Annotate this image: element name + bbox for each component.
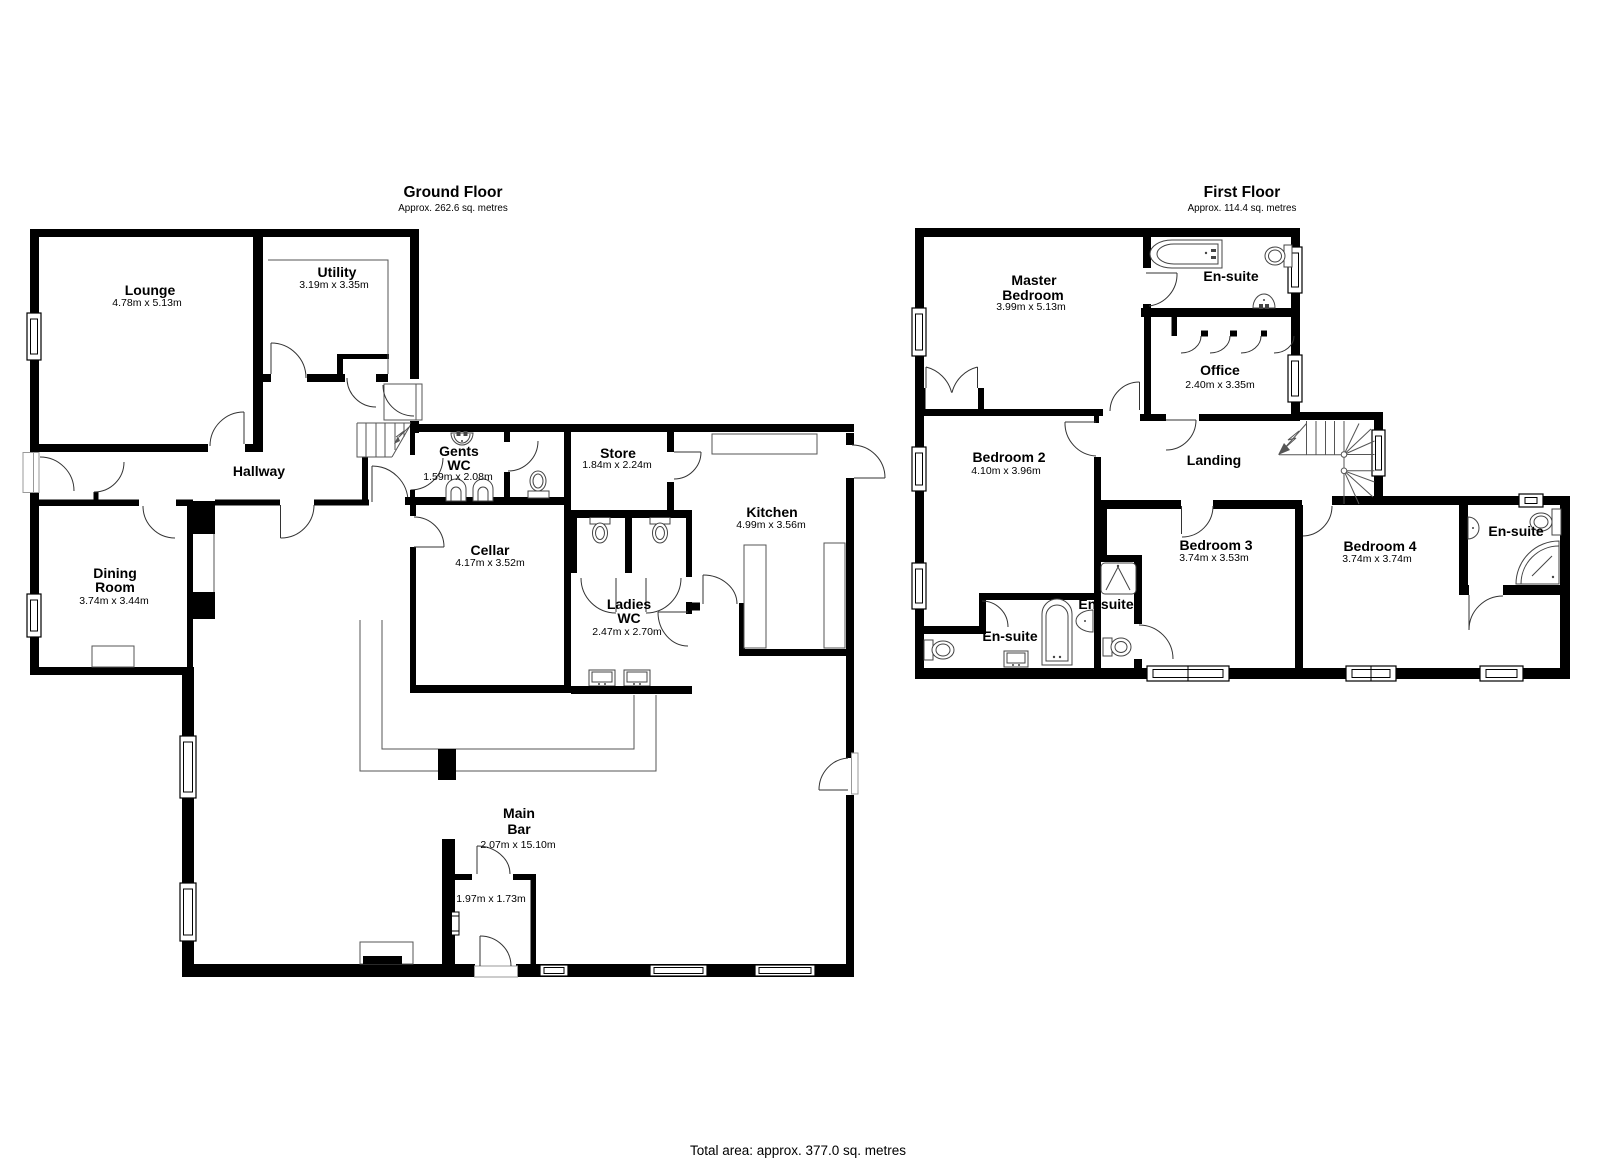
svg-text:Bar: Bar: [507, 821, 531, 837]
svg-text:Master: Master: [1011, 272, 1057, 288]
svg-text:3.74m x 3.74m: 3.74m x 3.74m: [1342, 553, 1412, 565]
svg-text:Kitchen: Kitchen: [746, 504, 797, 520]
svg-text:2.07m x 15.10m: 2.07m x 15.10m: [480, 839, 556, 851]
svg-text:Total area: approx. 377.0 sq.: Total area: approx. 377.0 sq. metres: [690, 1143, 906, 1158]
svg-text:1.84m x 2.24m: 1.84m x 2.24m: [582, 459, 652, 471]
svg-text:3.74m x 3.53m: 3.74m x 3.53m: [1179, 552, 1249, 564]
svg-text:Approx. 262.6 sq. metres: Approx. 262.6 sq. metres: [398, 203, 508, 214]
svg-text:3.74m x 3.44m: 3.74m x 3.44m: [79, 595, 149, 607]
svg-text:4.17m x 3.52m: 4.17m x 3.52m: [455, 557, 525, 569]
svg-text:Ground Floor: Ground Floor: [403, 184, 502, 201]
svg-text:Room: Room: [95, 579, 135, 595]
svg-text:Landing: Landing: [1187, 452, 1241, 468]
svg-text:Main: Main: [503, 805, 535, 821]
svg-text:3.99m x 5.13m: 3.99m x 5.13m: [996, 301, 1066, 313]
svg-text:Hallway: Hallway: [233, 463, 285, 479]
svg-text:WC: WC: [617, 610, 640, 626]
svg-text:1.59m x 2.08m: 1.59m x 2.08m: [423, 471, 493, 483]
svg-text:Approx. 114.4 sq. metres: Approx. 114.4 sq. metres: [1188, 203, 1297, 214]
svg-text:4.78m x 5.13m: 4.78m x 5.13m: [112, 297, 182, 309]
svg-text:First Floor: First Floor: [1204, 184, 1281, 201]
svg-text:Cellar: Cellar: [471, 542, 510, 558]
svg-text:4.10m x 3.96m: 4.10m x 3.96m: [971, 465, 1041, 477]
svg-text:2.47m x 2.70m: 2.47m x 2.70m: [592, 626, 662, 638]
svg-text:2.40m x 3.35m: 2.40m x 3.35m: [1185, 379, 1255, 391]
svg-text:Bedroom 4: Bedroom 4: [1343, 538, 1416, 554]
svg-text:En-suite: En-suite: [1078, 596, 1133, 612]
svg-text:Lounge: Lounge: [125, 282, 176, 298]
svg-text:Bedroom 2: Bedroom 2: [972, 449, 1045, 465]
svg-text:En-suite: En-suite: [1488, 523, 1543, 539]
svg-text:Office: Office: [1200, 362, 1240, 378]
svg-text:En-suite: En-suite: [1203, 268, 1258, 284]
svg-text:Utility: Utility: [318, 264, 357, 280]
svg-text:Bedroom 3: Bedroom 3: [1179, 537, 1252, 553]
svg-text:1.97m x 1.73m: 1.97m x 1.73m: [456, 893, 526, 905]
svg-text:4.99m x 3.56m: 4.99m x 3.56m: [736, 519, 806, 531]
svg-text:En-suite: En-suite: [982, 628, 1037, 644]
svg-text:3.19m x 3.35m: 3.19m x 3.35m: [299, 279, 369, 291]
